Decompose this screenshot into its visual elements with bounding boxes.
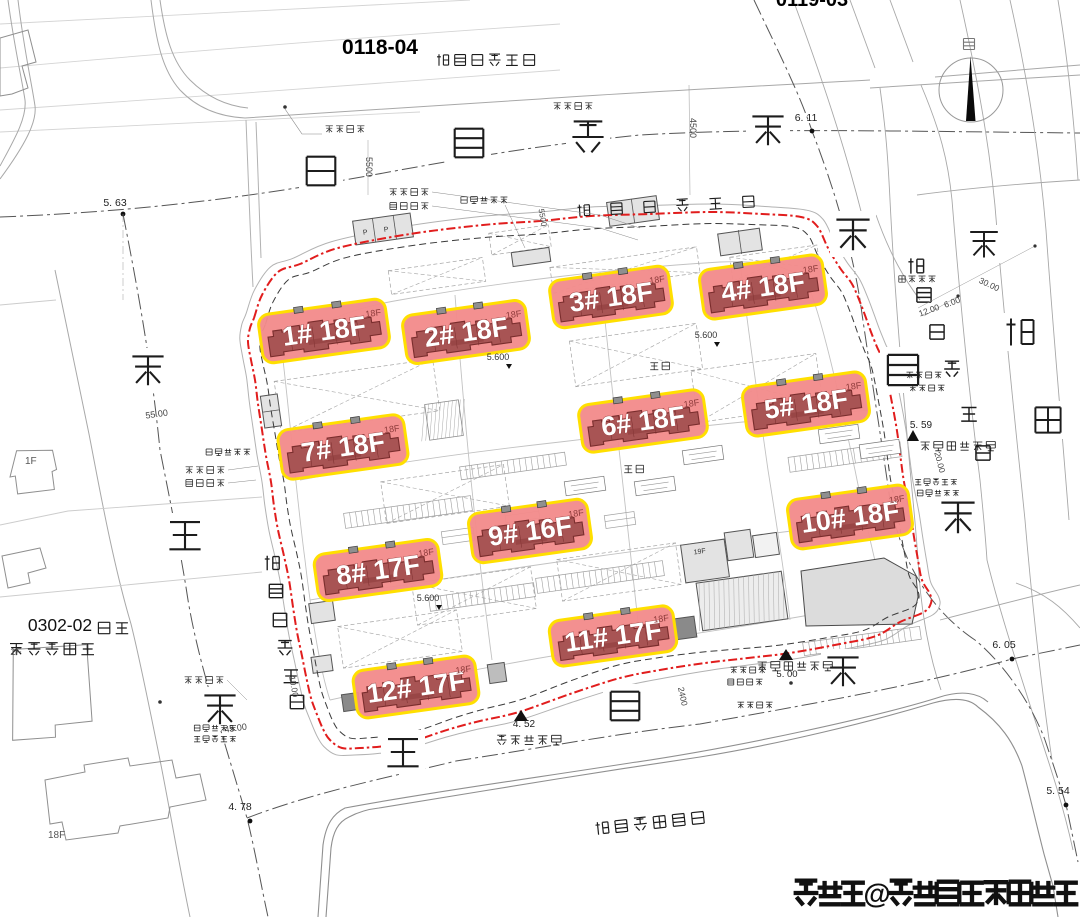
svg-text:6. 11: 6. 11 xyxy=(795,112,818,124)
svg-text:1F: 1F xyxy=(25,456,37,467)
svg-text:5.600: 5.600 xyxy=(487,352,510,362)
svg-text:1F: 1F xyxy=(10,647,22,658)
svg-text:6. 05: 6. 05 xyxy=(992,639,1016,651)
svg-text:5500: 5500 xyxy=(364,157,374,177)
svg-text:5. 63: 5. 63 xyxy=(103,197,127,209)
svg-text:5.600: 5.600 xyxy=(695,330,718,340)
svg-text:0119-03: 0119-03 xyxy=(776,0,848,11)
svg-text:0118-04: 0118-04 xyxy=(342,36,418,59)
svg-text:0302-02: 0302-02 xyxy=(28,615,92,635)
svg-text:4. 78: 4. 78 xyxy=(228,801,252,813)
svg-text:@: @ xyxy=(863,878,890,909)
svg-text:5. 59: 5. 59 xyxy=(910,420,933,431)
svg-text:4. 52: 4. 52 xyxy=(513,719,536,730)
svg-text:5.600: 5.600 xyxy=(417,593,440,603)
svg-text:5. 00: 5. 00 xyxy=(776,669,797,680)
svg-text:5. 54: 5. 54 xyxy=(1046,785,1070,797)
svg-text:18F: 18F xyxy=(48,830,65,841)
